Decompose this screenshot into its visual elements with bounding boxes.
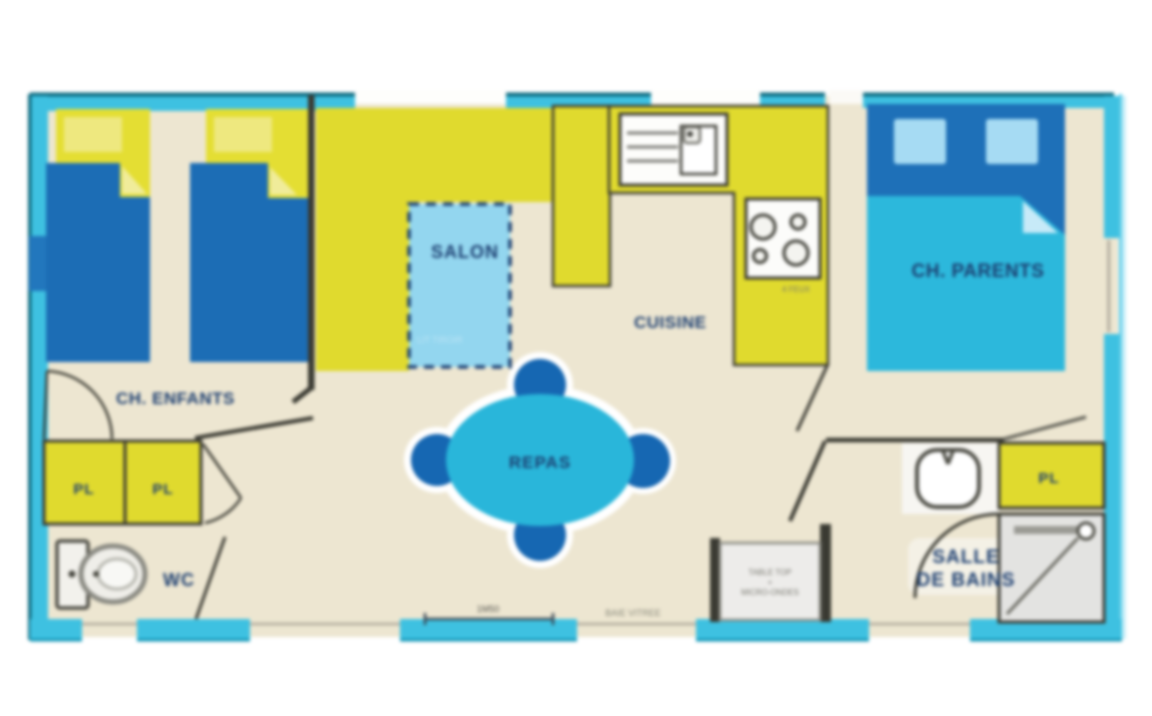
svg-text:+: + <box>768 578 773 587</box>
svg-text:BAIE VITREE: BAIE VITREE <box>605 608 661 618</box>
svg-text:CH. ENFANTS: CH. ENFANTS <box>116 389 235 408</box>
svg-text:PL: PL <box>73 481 94 498</box>
svg-text:CUISINE: CUISINE <box>634 313 706 332</box>
svg-text:LIT TIROIR: LIT TIROIR <box>417 335 463 345</box>
svg-text:DE BAINS: DE BAINS <box>917 570 1016 591</box>
svg-text:WC: WC <box>163 570 195 590</box>
svg-text:PL: PL <box>152 481 173 498</box>
svg-text:1M50: 1M50 <box>477 604 500 614</box>
svg-text:4 FEUX: 4 FEUX <box>782 285 811 294</box>
svg-text:CH. PARENTS: CH. PARENTS <box>912 261 1045 282</box>
svg-text:REPAS: REPAS <box>509 453 571 472</box>
svg-text:PL: PL <box>1038 470 1059 487</box>
svg-text:MICRO-ONDES: MICRO-ONDES <box>741 588 799 597</box>
svg-text:SALON: SALON <box>431 242 499 262</box>
svg-text:TABLE TOP: TABLE TOP <box>748 568 791 577</box>
svg-text:SALLE: SALLE <box>932 547 999 568</box>
